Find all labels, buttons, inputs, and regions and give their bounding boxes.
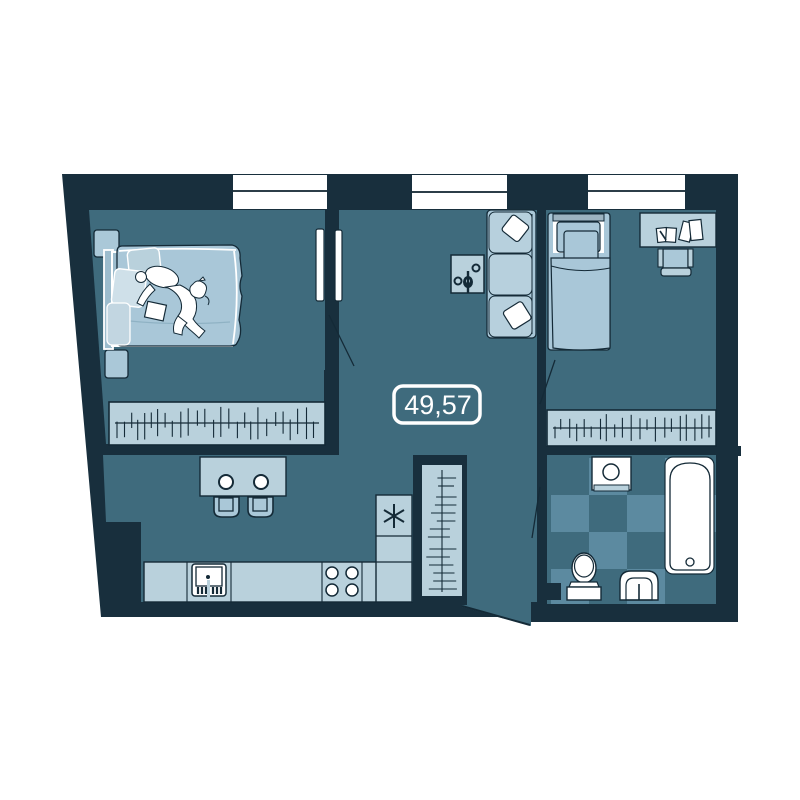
svg-text:49,57: 49,57: [404, 390, 472, 420]
